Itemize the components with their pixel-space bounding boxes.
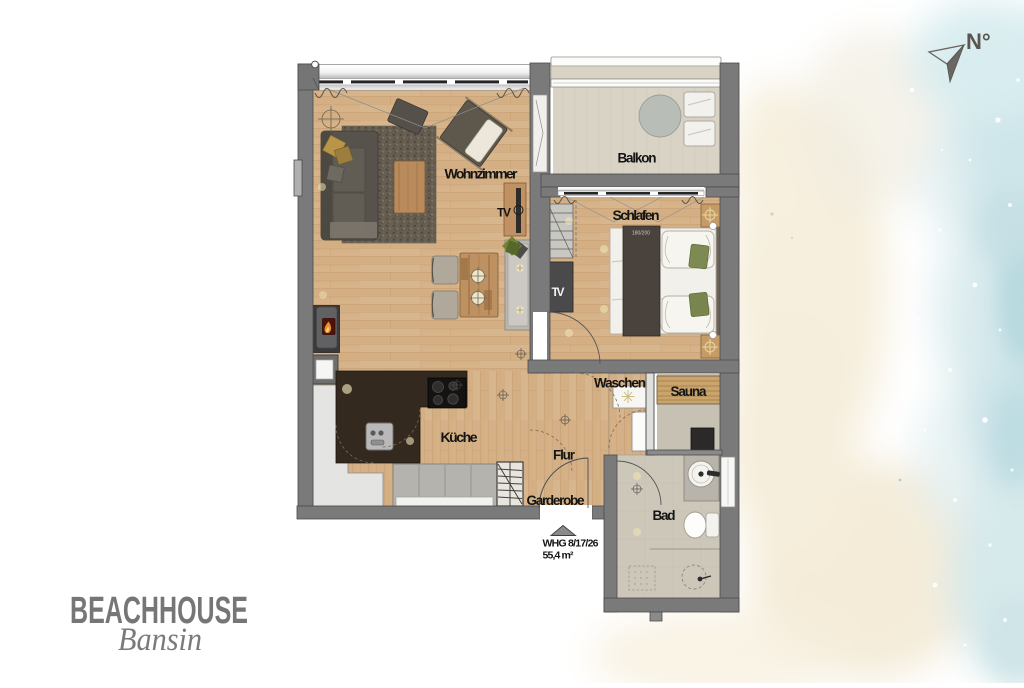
- svg-text:TV: TV: [552, 285, 565, 299]
- svg-text:Küche: Küche: [441, 429, 478, 445]
- svg-text:Garderobe: Garderobe: [527, 493, 585, 508]
- svg-text:TV: TV: [497, 206, 511, 220]
- svg-text:Bad: Bad: [653, 508, 676, 523]
- svg-text:Balkon: Balkon: [618, 151, 657, 166]
- svg-text:180/200: 180/200: [632, 231, 650, 237]
- svg-text:Flur: Flur: [553, 448, 576, 463]
- svg-text:Waschen: Waschen: [594, 376, 646, 391]
- svg-text:55,4 m²: 55,4 m²: [543, 550, 575, 562]
- svg-text:WHG 8/17/26: WHG 8/17/26: [543, 538, 599, 550]
- svg-text:Sauna: Sauna: [671, 384, 707, 399]
- svg-text:N°: N°: [966, 29, 991, 54]
- svg-text:Bansin: Bansin: [118, 622, 202, 658]
- svg-text:Schlafen: Schlafen: [613, 207, 660, 223]
- svg-text:Wohnzimmer: Wohnzimmer: [445, 166, 519, 182]
